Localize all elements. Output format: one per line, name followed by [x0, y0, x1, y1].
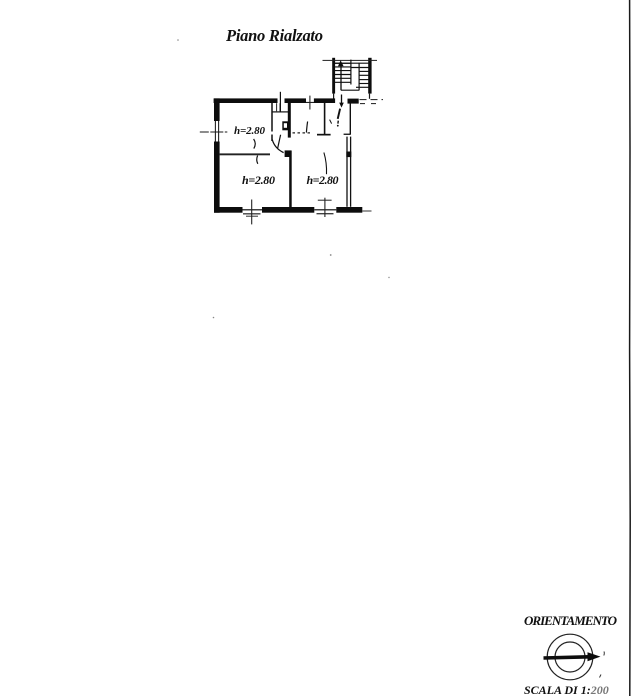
svg-text:h=2.80: h=2.80: [307, 173, 339, 187]
svg-text:h=2.80: h=2.80: [242, 173, 275, 187]
svg-text:SCALA DI 1:200: SCALA DI 1:200: [524, 683, 609, 697]
svg-text:ORIENTAMENTO: ORIENTAMENTO: [524, 613, 618, 628]
svg-text:h=2.80: h=2.80: [234, 125, 266, 137]
svg-text:Piano Rialzato: Piano Rialzato: [225, 26, 323, 45]
